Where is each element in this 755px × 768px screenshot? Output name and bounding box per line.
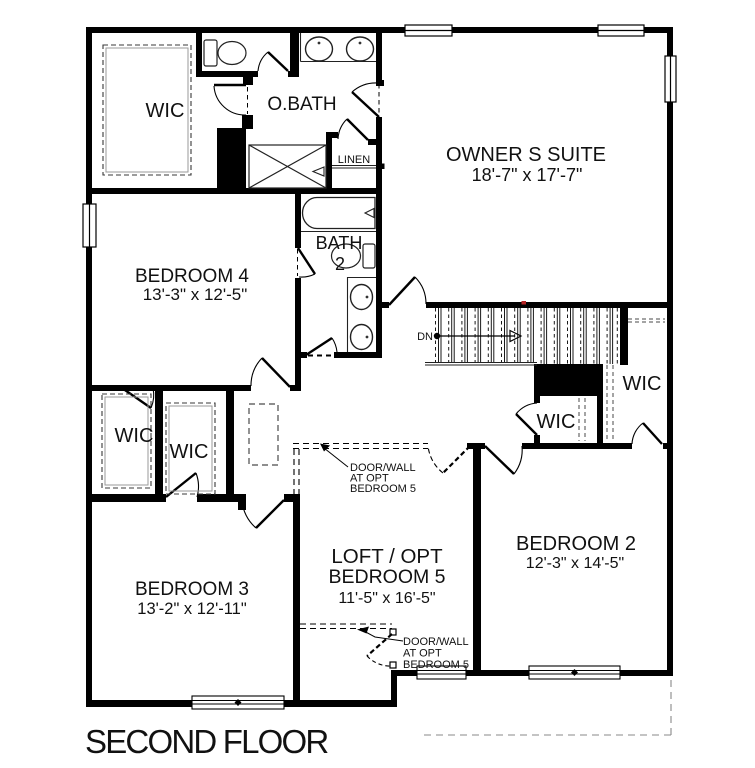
svg-text:BEDROOM 5: BEDROOM 5 [350,483,416,495]
svg-text:2: 2 [335,254,345,274]
svg-text:LINEN: LINEN [338,154,370,166]
svg-text:AT OPT: AT OPT [403,648,442,660]
svg-text:18'-7" x 17'-7": 18'-7" x 17'-7" [472,165,583,185]
svg-text:13'-2" x 12'-11": 13'-2" x 12'-11" [137,600,247,618]
svg-text:12'-3" x 14'-5": 12'-3" x 14'-5" [526,555,624,572]
svg-text:BEDROOM 4: BEDROOM 4 [135,266,249,287]
svg-text:BEDROOM 5: BEDROOM 5 [328,566,445,588]
svg-text:BATH: BATH [316,233,363,253]
svg-text:SECOND FLOOR: SECOND FLOOR [85,723,328,760]
svg-text:BEDROOM 3: BEDROOM 3 [135,579,249,600]
svg-text:OWNER S SUITE: OWNER S SUITE [446,144,606,166]
svg-text:11'-5" x 16'-5": 11'-5" x 16'-5" [338,590,435,607]
svg-text:BEDROOM 2: BEDROOM 2 [516,533,636,555]
svg-text:WIC: WIC [170,441,209,463]
svg-text:WIC: WIC [537,411,576,433]
svg-text:WIC: WIC [115,425,154,447]
svg-text:LOFT / OPT: LOFT / OPT [331,545,443,568]
svg-text:O.BATH: O.BATH [267,94,336,115]
svg-text:BEDROOM 5: BEDROOM 5 [403,659,469,671]
svg-text:13'-3" x 12'-5": 13'-3" x 12'-5" [143,285,248,304]
svg-text:DN: DN [417,331,433,343]
svg-text:WIC: WIC [146,100,185,122]
svg-text:DOOR/WALL: DOOR/WALL [403,636,469,648]
svg-text:WIC: WIC [623,373,662,395]
